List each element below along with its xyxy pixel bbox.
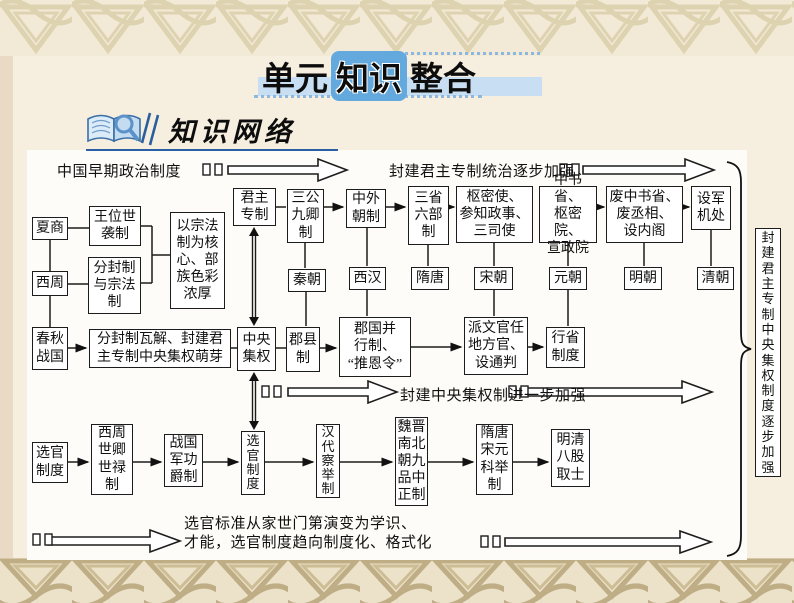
node-side-summary: 封建君主专制中央集权制度逐步加强 <box>755 228 781 477</box>
node-centralization: 中央 集权 <box>237 327 276 371</box>
node-monarchy: 君主 专制 <box>233 188 276 226</box>
node-junguo-tuien: 郡国并 行制、 “推恩令” <box>339 317 411 377</box>
label-centralization-strengthen: 封建中央集权制进一步加强 <box>400 384 586 405</box>
node-fei-zhongshu: 废中书省、 废丞相、 设内阁 <box>606 186 683 243</box>
label-early-politics: 中国早期政治制度 <box>57 160 181 181</box>
label-selection-standard: 选官标准从家世门第演变为学识、 才能，选官制度趋向制度化、格式化 <box>184 515 432 553</box>
node-ming: 明朝 <box>624 267 662 290</box>
node-fenfeng-collapse: 分封制瓦解、封建君 主专制中央集权萌芽 <box>89 329 231 368</box>
node-sansheng-liubu: 三省 六部 制 <box>408 186 449 245</box>
node-sangong-jiuqing: 三公 九卿 制 <box>287 189 324 243</box>
node-junjichu: 设军 机处 <box>691 186 731 230</box>
node-shumishi: 枢密使、 参知政事、 三司使 <box>456 186 533 243</box>
node-keju: 隋唐 宋元 科举 制 <box>476 424 513 495</box>
slide: 单元 知识 整合 知识网络 <box>0 0 794 603</box>
node-yuan: 元朝 <box>549 267 587 290</box>
node-xia-shang: 夏商 <box>32 217 68 240</box>
node-zhongwai-chao: 中外 朝制 <box>346 189 386 228</box>
node-fenfeng-zongfa: 分封制 与宗法 制 <box>88 257 141 314</box>
node-xingsheng: 行省 制度 <box>546 327 585 368</box>
node-chaju: 汉 代 察 举 制 <box>316 424 340 498</box>
node-xuanguan: 选官 制度 <box>32 442 68 483</box>
node-jiupin-zhongzheng: 魏晋 南北 朝九 品中 正制 <box>395 417 428 506</box>
node-xizhou: 西周 <box>32 271 68 296</box>
double-arrow-junzhu-zhongyang <box>249 227 259 326</box>
node-xihan: 西汉 <box>349 267 386 290</box>
node-paiwenguan: 派文官任 地方官、 设通判 <box>464 317 528 375</box>
node-jungong-jue: 战国 军功 爵制 <box>164 434 203 487</box>
node-qin: 秦朝 <box>288 269 326 292</box>
node-zongfa-core: 以宗法 制为核 心、部 族色彩 浓厚 <box>170 212 225 309</box>
node-junxian: 郡县 制 <box>286 327 320 372</box>
node-chunqiu-zhanguo: 春秋 战国 <box>32 327 68 370</box>
node-hereditary-throne: 王位世 袭制 <box>89 206 141 246</box>
node-bagu: 明清 八股 取士 <box>551 429 590 487</box>
node-qing: 清朝 <box>697 267 734 290</box>
double-arrow-zhongyang-xuanguan <box>249 372 259 430</box>
node-zhongshusheng: 中书省、 枢密院、 宣政院 <box>539 186 597 243</box>
node-shiqing-shilu: 西周 世卿 世禄 制 <box>91 424 133 495</box>
node-song: 宋朝 <box>474 267 513 290</box>
node-xuanguan-vertical: 选 官 制 度 <box>241 431 265 495</box>
node-suitang: 隋唐 <box>411 267 449 290</box>
